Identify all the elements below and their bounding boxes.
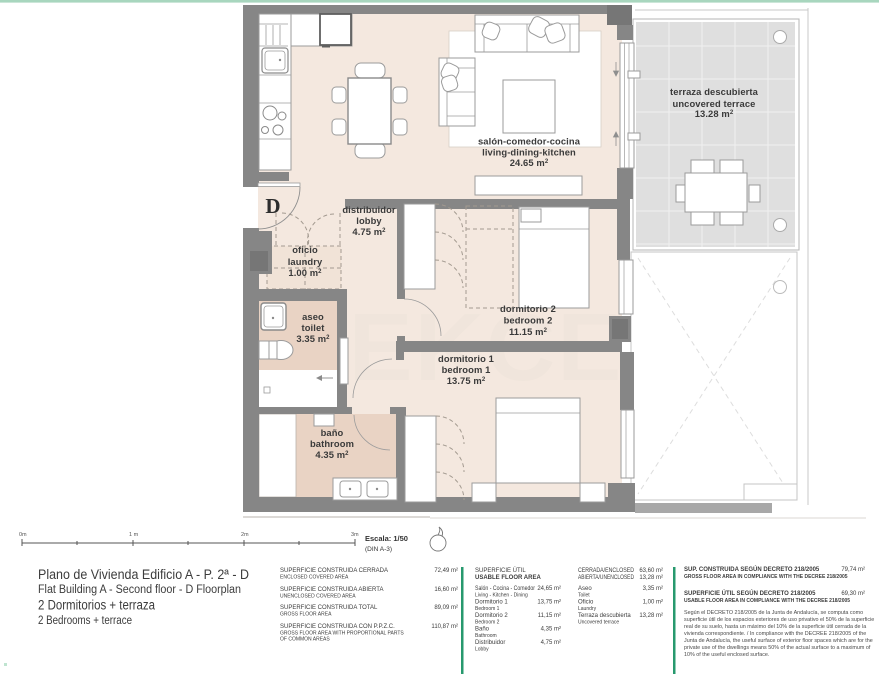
svg-text:Flat Building A - Second floor: Flat Building A - Second floor - D Floor… — [38, 584, 241, 596]
svg-text:distribuidor: distribuidor — [342, 204, 396, 215]
svg-text:1.00 m2: 1.00 m2 — [288, 267, 322, 278]
svg-text:real de su suelo, hasta un máx: real de su suelo, hasta un máximo del 10… — [684, 624, 866, 630]
svg-text:OF COMMON AREAS: OF COMMON AREAS — [280, 637, 330, 643]
svg-text:bathroom: bathroom — [310, 438, 354, 449]
svg-text:SUPERFICIE CONSTRUIDA ABIERTA: SUPERFICIE CONSTRUIDA ABIERTA — [280, 587, 383, 593]
svg-text:CERRADA/ENCLOSED: CERRADA/ENCLOSED — [578, 568, 635, 574]
svg-text:10% of the useful enclosed sur: 10% of the useful enclosed surface. — [684, 652, 769, 658]
svg-text:Lobby: Lobby — [475, 647, 489, 653]
svg-text:Laundry: Laundry — [578, 606, 597, 612]
svg-text:13,28 m²: 13,28 m² — [639, 575, 663, 581]
svg-text:Bedroom 2: Bedroom 2 — [475, 620, 500, 626]
svg-text:Baño: Baño — [475, 627, 490, 633]
svg-text:Uncovered terrace: Uncovered terrace — [578, 620, 619, 626]
svg-text:63,60 m²: 63,60 m² — [639, 568, 663, 574]
svg-text:GROSS FLOOR AREA: GROSS FLOOR AREA — [280, 612, 332, 618]
svg-text:SUPERFICIE ÚTIL: SUPERFICIE ÚTIL — [475, 567, 526, 574]
svg-text:ABIERTA/UNENCLOSED: ABIERTA/UNENCLOSED — [578, 575, 635, 581]
svg-text:13,75 m²: 13,75 m² — [537, 600, 561, 606]
svg-text:13.28 m2: 13.28 m2 — [695, 108, 734, 119]
svg-text:USABLE FLOOR AREA IN COMPLIANC: USABLE FLOOR AREA IN COMPLIANCE WITH THE… — [684, 598, 850, 604]
svg-text:Plano de Vivienda Edificio A -: Plano de Vivienda Edificio A - P. 2ª - D — [38, 567, 249, 582]
svg-text:private use of the dwellings m: private use of the dwellings means 50% o… — [684, 645, 871, 651]
svg-text:Distribuidor: Distribuidor — [475, 640, 505, 646]
svg-text:oficio: oficio — [292, 244, 318, 255]
svg-text:72,49 m²: 72,49 m² — [434, 568, 458, 574]
svg-text:4.75 m2: 4.75 m2 — [352, 226, 386, 237]
svg-text:13,28 m²: 13,28 m² — [639, 613, 663, 619]
svg-text:toilet: toilet — [302, 322, 325, 333]
svg-text:Aseo: Aseo — [578, 586, 592, 592]
svg-text:vivienda correspondiente. / In: vivienda correspondiente. / In complianc… — [684, 631, 866, 637]
svg-text:4,35 m²: 4,35 m² — [541, 627, 561, 633]
svg-text:2 Bedrooms + terrace: 2 Bedrooms + terrace — [38, 615, 132, 627]
svg-text:SUPERFICIE ÚTIL SEGÚN DECRETO: SUPERFICIE ÚTIL SEGÚN DECRETO 218/2005 — [684, 590, 816, 597]
svg-text:11,15 m²: 11,15 m² — [538, 613, 561, 619]
svg-text:UNENCLOSED COVERED AREA: UNENCLOSED COVERED AREA — [280, 594, 356, 600]
svg-text:89,09 m²: 89,09 m² — [434, 605, 458, 611]
svg-text:lobby: lobby — [356, 215, 382, 226]
svg-text:Toilet: Toilet — [578, 593, 590, 599]
svg-text:1 m: 1 m — [129, 532, 139, 538]
svg-text:GROSS FLOOR AREA IN COMPLIANCE: GROSS FLOOR AREA IN COMPLIANCE WITH THE … — [684, 574, 848, 580]
svg-text:11.15 m2: 11.15 m2 — [509, 326, 548, 337]
svg-text:69,30 m²: 69,30 m² — [841, 591, 865, 597]
svg-text:SUPERFICIE CONSTRUIDA CERRADA: SUPERFICIE CONSTRUIDA CERRADA — [280, 568, 388, 574]
svg-text:16,60 m²: 16,60 m² — [434, 587, 458, 593]
svg-text:aseo: aseo — [302, 311, 324, 322]
svg-text:D: D — [265, 194, 280, 218]
svg-text:USABLE FLOOR AREA: USABLE FLOOR AREA — [475, 575, 541, 581]
svg-text:living-dining-kitchen: living-dining-kitchen — [482, 147, 576, 158]
svg-text:2m: 2m — [241, 532, 249, 538]
svg-text:13.75 m2: 13.75 m2 — [447, 375, 486, 386]
svg-text:bedroom 2: bedroom 2 — [504, 315, 553, 326]
svg-text:4,75 m²: 4,75 m² — [541, 640, 561, 646]
svg-text:laundry: laundry — [288, 256, 323, 267]
svg-text:ENCLOSED COVERED AREA: ENCLOSED COVERED AREA — [280, 575, 349, 581]
svg-text:dormitorio 1: dormitorio 1 — [438, 353, 494, 364]
svg-text:Según el DECRETO 218/2005 de l: Según el DECRETO 218/2005 de la Junta de… — [684, 610, 863, 616]
svg-text:3m: 3m — [351, 532, 359, 538]
svg-text:0m: 0m — [19, 532, 27, 538]
svg-text:terraza descubierta: terraza descubierta — [670, 86, 759, 97]
svg-text:Bedroom 1: Bedroom 1 — [475, 606, 500, 612]
svg-text:salón-comedor-cocina: salón-comedor-cocina — [478, 136, 581, 147]
svg-text:baño: baño — [321, 427, 344, 438]
svg-text:superficie útil de los espacio: superficie útil de los espacios exterior… — [684, 617, 874, 623]
svg-text:Living - Kitchen - Dining: Living - Kitchen - Dining — [475, 593, 528, 599]
svg-text:SUPERFICIE CONSTRUIDA TOTAL: SUPERFICIE CONSTRUIDA TOTAL — [280, 605, 378, 611]
svg-text:SUPERFICIE CONSTRUIDA CON P.P.: SUPERFICIE CONSTRUIDA CON P.P.Z.C. — [280, 624, 395, 630]
svg-text:1,00 m²: 1,00 m² — [643, 600, 663, 606]
svg-text:24,65 m²: 24,65 m² — [537, 586, 561, 592]
svg-text:Junta de Andalucía, the useful: Junta de Andalucía, the useful surface o… — [684, 638, 873, 644]
svg-text:3,35 m²: 3,35 m² — [643, 586, 663, 592]
svg-text:3.35 m2: 3.35 m2 — [296, 333, 330, 344]
svg-text:79,74 m²: 79,74 m² — [841, 567, 865, 573]
svg-text:dormitorio 2: dormitorio 2 — [500, 303, 556, 314]
svg-text:Oficio: Oficio — [578, 600, 594, 606]
svg-text:4.35 m2: 4.35 m2 — [315, 449, 349, 460]
svg-text:bedroom 1: bedroom 1 — [442, 364, 491, 375]
svg-text:Dormitorio 2: Dormitorio 2 — [475, 613, 508, 619]
svg-text:24.65 m2: 24.65 m2 — [510, 157, 549, 168]
svg-text:SUP. CONSTRUIDA SEGÚN DECRETO: SUP. CONSTRUIDA SEGÚN DECRETO 218/2005 — [684, 566, 820, 573]
svg-text:Escala: 1/50: Escala: 1/50 — [365, 534, 408, 543]
svg-text:Dormitorio 1: Dormitorio 1 — [475, 600, 508, 606]
svg-text:(DIN A-3): (DIN A-3) — [365, 546, 392, 553]
svg-text:110,87 m²: 110,87 m² — [431, 624, 458, 630]
svg-text:2 Dormitorios + terraza: 2 Dormitorios + terraza — [38, 598, 155, 613]
svg-text:Salón - Cocina - Comedor: Salón - Cocina - Comedor — [475, 586, 535, 592]
svg-text:Terraza descubierta: Terraza descubierta — [578, 613, 631, 619]
svg-text:Bathroom: Bathroom — [475, 633, 497, 639]
